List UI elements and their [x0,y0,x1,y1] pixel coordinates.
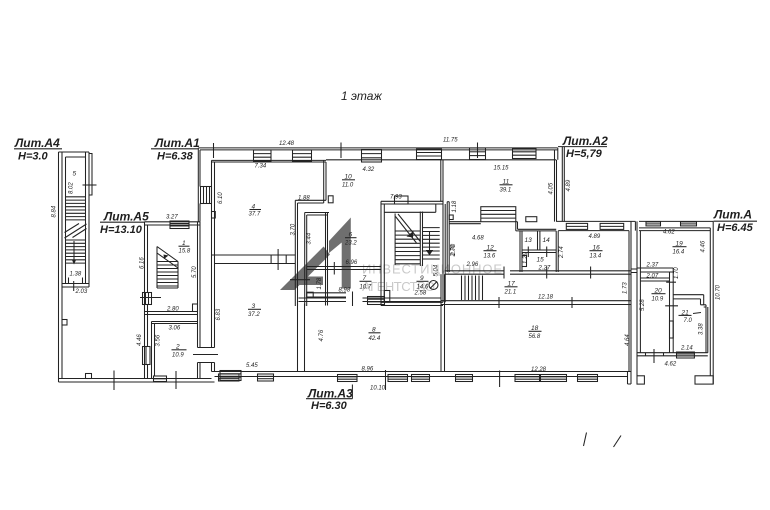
svg-text:2.03: 2.03 [75,289,88,295]
svg-text:5.28: 5.28 [640,299,646,311]
svg-text:2.07: 2.07 [646,274,659,280]
svg-text:4.62: 4.62 [663,230,675,236]
svg-text:8.02: 8.02 [69,182,75,194]
svg-text:12.28: 12.28 [531,367,547,373]
svg-text:1.38: 1.38 [70,272,82,278]
svg-text:4.46: 4.46 [701,240,707,252]
svg-text:Лит.А: Лит.А [713,207,752,221]
svg-text:12.48: 12.48 [279,141,295,147]
svg-text:4.89: 4.89 [589,234,601,240]
svg-text:4.68: 4.68 [472,236,484,242]
svg-text:1.88: 1.88 [298,196,310,202]
svg-text:15.8: 15.8 [179,249,191,255]
svg-text:4.05: 4.05 [549,182,555,194]
svg-text:5.04: 5.04 [434,264,440,276]
svg-text:1.29: 1.29 [523,252,529,264]
svg-text:12.18: 12.18 [538,295,554,301]
svg-text:H=6.38: H=6.38 [157,151,194,163]
svg-text:5: 5 [73,171,77,178]
svg-text:6.96: 6.96 [346,260,358,266]
svg-text:1.78: 1.78 [317,277,323,289]
svg-text:3.70: 3.70 [290,223,296,235]
svg-text:6.10: 6.10 [218,192,224,204]
svg-text:Лит.А1: Лит.А1 [154,136,200,150]
svg-text:23.2: 23.2 [344,240,357,246]
svg-text:42.4: 42.4 [369,336,381,342]
svg-text:39.1: 39.1 [500,187,512,193]
svg-text:H=6.30: H=6.30 [311,400,348,412]
svg-text:37.2: 37.2 [248,312,260,318]
svg-text:15: 15 [537,257,545,264]
svg-text:4.32: 4.32 [363,167,375,173]
svg-text:11.0: 11.0 [342,182,354,188]
svg-text:13.6: 13.6 [484,253,496,259]
svg-text:10.7: 10.7 [360,284,372,290]
svg-text:10.10: 10.10 [370,386,386,392]
svg-text:14: 14 [543,237,551,244]
svg-text:10.9: 10.9 [172,353,184,359]
svg-text:7.0: 7.0 [684,318,693,324]
svg-text:3.27: 3.27 [166,215,178,221]
svg-text:7.93: 7.93 [390,194,402,200]
svg-text:8.84: 8.84 [52,205,58,217]
svg-text:Лит.А5: Лит.А5 [103,210,149,224]
svg-text:2.80: 2.80 [166,307,179,313]
svg-text:1.18: 1.18 [452,200,458,212]
svg-text:4.76: 4.76 [319,329,325,341]
svg-text:H=5,79: H=5,79 [566,148,603,160]
svg-text:56.8: 56.8 [529,334,541,340]
svg-text:14.6: 14.6 [417,284,429,290]
svg-text:5.70: 5.70 [192,266,198,278]
svg-text:8.96: 8.96 [362,367,374,373]
svg-text:3.06: 3.06 [169,326,181,332]
svg-text:3.38: 3.38 [699,323,705,335]
svg-text:2.96: 2.96 [466,262,479,268]
svg-text:16.4: 16.4 [673,249,685,255]
svg-text:13.4: 13.4 [590,253,602,259]
svg-text:2.70: 2.70 [451,244,457,257]
svg-text:21.1: 21.1 [504,289,517,295]
svg-text:3.44: 3.44 [307,232,313,244]
svg-text:4.46: 4.46 [137,334,143,346]
svg-text:13: 13 [525,237,533,244]
svg-text:10.70: 10.70 [716,284,722,300]
svg-text:5.45: 5.45 [246,363,258,369]
svg-text:H=6.45: H=6.45 [717,222,754,234]
svg-text:4.62: 4.62 [665,362,677,368]
svg-text:4.89: 4.89 [566,179,572,191]
svg-text:H=13.10: H=13.10 [100,224,143,236]
svg-text:Лит.А2: Лит.А2 [562,134,608,148]
svg-text:6.83: 6.83 [216,308,222,320]
svg-text:10.9: 10.9 [652,296,664,302]
svg-text:3.56: 3.56 [156,334,162,346]
svg-text:4.64: 4.64 [625,334,631,346]
svg-text:Лит.А4: Лит.А4 [14,136,60,150]
svg-text:2.74: 2.74 [559,246,565,259]
svg-text:H=3.0: H=3.0 [18,151,49,163]
svg-text:15.15: 15.15 [494,166,510,172]
svg-text:2.37: 2.37 [646,263,659,269]
svg-text:1.70: 1.70 [674,267,680,279]
svg-text:2.14: 2.14 [680,346,693,352]
svg-text:37.7: 37.7 [249,212,261,218]
svg-text:1.73: 1.73 [623,282,629,294]
svg-text:7.34: 7.34 [255,164,267,170]
svg-text:1 этаж: 1 этаж [341,89,382,103]
svg-text:11.75: 11.75 [443,138,458,144]
svg-text:6.16: 6.16 [140,257,146,269]
svg-text:2.58: 2.58 [414,291,427,297]
